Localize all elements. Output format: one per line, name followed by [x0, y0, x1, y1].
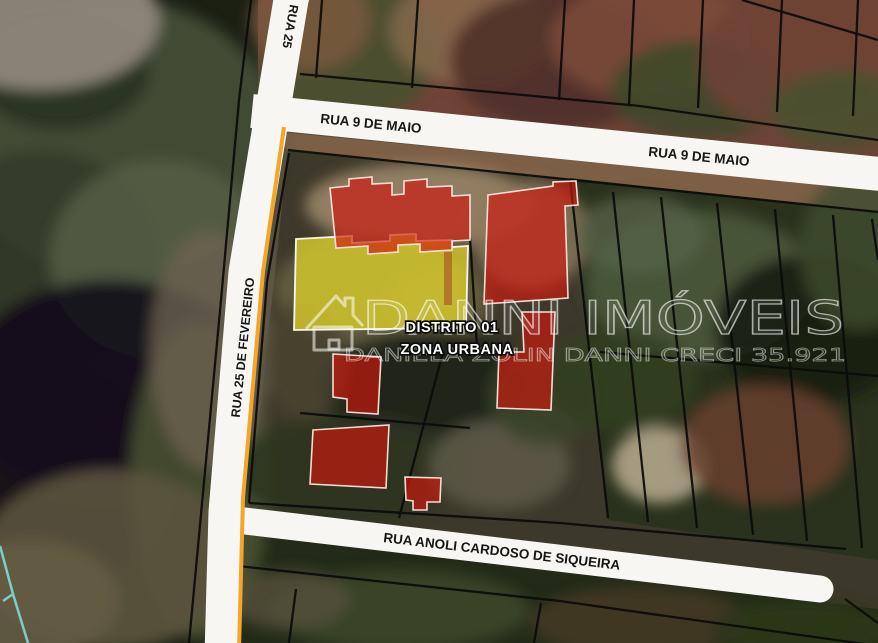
watermark-brand-text: DANNI IMÓVEIS — [362, 291, 844, 345]
terrain-texture — [575, 195, 705, 275]
zone-label-distrito: DISTRITO 01 — [405, 320, 498, 336]
building-footprint-red-5 — [310, 425, 389, 488]
terrain-texture — [680, 385, 850, 505]
building-footprint-red-2 — [484, 181, 578, 304]
zone-label-zona-urbana: ZONA URBANA — [401, 342, 514, 358]
watermark: DANNI IMÓVEIS DANIELA ZOLIN DANNI CRECI … — [306, 291, 846, 366]
terrain-texture — [230, 570, 350, 630]
map-overlay: RUA 25 RUA 9 DE MAIO RUA 9 DE MAIO RUA 2… — [0, 0, 878, 643]
aerial-map-canvas: RUA 25 RUA 9 DE MAIO RUA 9 DE MAIO RUA 2… — [0, 0, 878, 643]
